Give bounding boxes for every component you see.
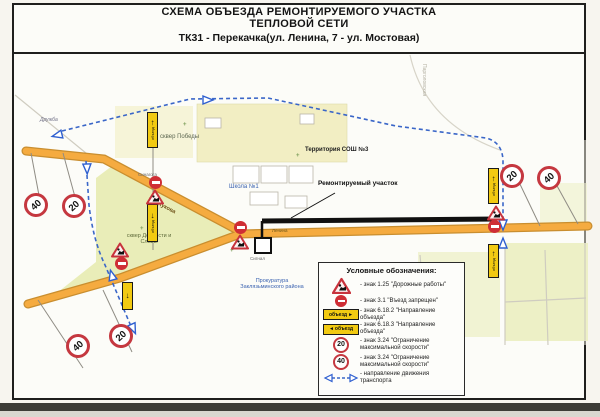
arrow-left-icon: ◄ [329, 326, 334, 332]
no-entry-sign [149, 176, 162, 189]
detour-sign-down: ↓ [122, 282, 133, 310]
legend-item-label: - знак 6.18.2 "Направление объезда" [360, 308, 461, 321]
legend-item-label: - знак 3.1 "Въезд запрещен" [360, 298, 438, 305]
roadworks-sign [146, 189, 164, 205]
legend-item: ◄объезд - знак 6.18.3 "Направление объез… [322, 322, 461, 335]
label-street-lenina: Ленина [272, 228, 287, 233]
label-school1: Школа №1 [229, 184, 259, 191]
legend-box: Условные обозначения: - знак 1.25 "Дорож… [318, 262, 465, 396]
legend-item: 40 - знак 3.24 "Ограничение максимальной… [322, 354, 461, 370]
detour-sign-text: объезд [151, 220, 155, 233]
tk31-chamber [255, 238, 271, 253]
legend-item-label: - направление движения транспорта [360, 371, 461, 384]
scan-edge-light [0, 411, 600, 417]
detour-right-sign-icon: объезд► [322, 309, 360, 320]
repair-bar [262, 219, 497, 221]
legend-item: - направление движения транспорта [322, 371, 461, 384]
label-prosecutor: Прокуратура Заклязьминского района [240, 278, 304, 291]
arrow-right-icon: ► [348, 312, 353, 318]
detour-sign-up: ↑ объезд [147, 112, 158, 148]
arrow-down-icon: ↓ [126, 292, 130, 300]
scan-edge-shadow [0, 403, 600, 411]
label-druzhba: Дружба [40, 118, 58, 124]
no-entry-sign-icon [322, 295, 360, 307]
map-canvas [0, 0, 600, 417]
legend-item: 20 - знак 3.24 "Ограничение максимальной… [322, 337, 461, 353]
legend-item: - знак 3.1 "Въезд запрещен" [322, 295, 461, 307]
detour-scheme-page: СХЕМА ОБЪЕЗДА РЕМОНТИРУЕМОГО УЧАСТКА ТЕП… [0, 0, 600, 417]
speed-40-sign-icon: 40 [322, 354, 360, 370]
roadworks-sign-icon [322, 277, 360, 294]
roadworks-sign [231, 234, 249, 250]
roadworks-sign [111, 242, 129, 258]
road-lenina [240, 226, 588, 234]
label-school-territory: Территория СОШ №3 [305, 147, 368, 154]
detour-sign-down: ↓ объезд [147, 204, 158, 242]
no-entry-sign [488, 220, 501, 233]
roadworks-sign [487, 205, 505, 221]
detour-sign-text: объезд [492, 258, 496, 271]
no-entry-sign [234, 221, 247, 234]
tree-icon: + [296, 153, 300, 159]
detour-sign-up: ↑ объезд [488, 244, 499, 278]
detour-sign-text: объезд [151, 127, 155, 140]
detour-sign-up: ↑ объезд [488, 168, 499, 204]
legend-item: объезд► - знак 6.18.2 "Направление объез… [322, 308, 461, 321]
tree-icon: + [183, 122, 187, 128]
label-pargolovskaya: Парголовская [420, 64, 426, 96]
detour-sign-text: объезд [492, 183, 496, 196]
speed-20-sign-icon: 20 [322, 337, 360, 353]
legend-title: Условные обозначения: [322, 266, 461, 275]
legend-item: - знак 1.25 "Дорожные работы" [322, 277, 461, 294]
tree-icon: + [140, 226, 144, 232]
detour-left-sign-icon: ◄объезд [322, 324, 360, 335]
legend-item-label: - знак 1.25 "Дорожные работы" [360, 282, 446, 289]
no-entry-sign [115, 257, 128, 270]
legend-item-label: - знак 3.24 "Ограничение максимальной ск… [360, 355, 461, 368]
label-signal: Сигнал [250, 256, 265, 261]
traffic-direction-arrow-icon [322, 373, 360, 383]
detour-sign-text: объезд [335, 326, 353, 332]
legend-item-label: - знак 3.24 "Ограничение максимальной ск… [360, 338, 461, 351]
detour-sign-text: объезд [329, 312, 347, 318]
label-park-pobedy: сквер Победы [160, 134, 199, 141]
legend-item-label: - знак 6.18.3 "Направление объезда" [360, 322, 461, 335]
label-repair-section: Ремонтируемый участок [318, 180, 398, 187]
